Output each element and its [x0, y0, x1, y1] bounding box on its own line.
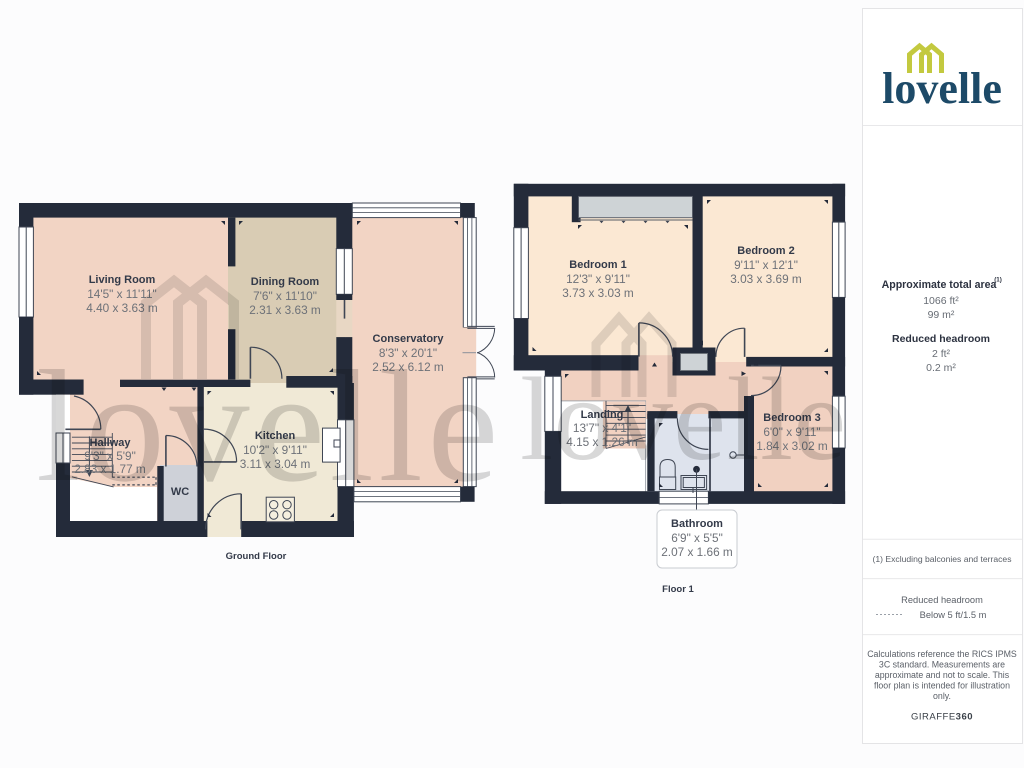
svg-text:2.31 x 3.63 m: 2.31 x 3.63 m [249, 303, 321, 317]
svg-text:3C standard. Measurements are: 3C standard. Measurements are [879, 660, 1005, 670]
svg-text:Approximate total area: Approximate total area [882, 279, 997, 291]
svg-text:Living Room: Living Room [89, 274, 156, 286]
svg-text:3.73 x 3.03 m: 3.73 x 3.03 m [562, 286, 634, 300]
svg-text:lovelle: lovelle [520, 353, 847, 485]
svg-text:Bedroom 1: Bedroom 1 [569, 259, 626, 271]
svg-text:Bathroom: Bathroom [671, 518, 723, 530]
svg-text:1066 ft²: 1066 ft² [923, 295, 959, 307]
svg-text:3.03 x 3.69 m: 3.03 x 3.69 m [730, 272, 802, 286]
svg-text:Calculations reference the RIC: Calculations reference the RICS IPMS [867, 649, 1017, 659]
svg-text:floor plan is intended for ill: floor plan is intended for illustration [874, 681, 1010, 691]
svg-text:7'6" x 11'10": 7'6" x 11'10" [253, 289, 317, 303]
svg-text:GIRAFFE360: GIRAFFE360 [911, 712, 973, 723]
svg-text:only.: only. [933, 691, 951, 701]
svg-text:12'3" x 9'11": 12'3" x 9'11" [566, 272, 630, 286]
svg-text:Ground Floor: Ground Floor [226, 551, 287, 562]
svg-text:2 ft²: 2 ft² [932, 348, 951, 360]
svg-text:approximate and not to scale.: approximate and not to scale. This [875, 670, 1010, 680]
svg-text:6'9" x 5'5": 6'9" x 5'5" [671, 531, 723, 545]
svg-text:Below 5 ft/1.5 m: Below 5 ft/1.5 m [920, 610, 987, 620]
svg-text:(1) Excluding balconies and te: (1) Excluding balconies and terraces [872, 554, 1011, 564]
svg-text:9'11" x 12'1": 9'11" x 12'1" [734, 258, 798, 272]
svg-text:lovelle: lovelle [882, 64, 1002, 113]
svg-text:Dining Room: Dining Room [251, 276, 320, 288]
svg-text:99 m²: 99 m² [928, 309, 955, 321]
svg-text:Reduced headroom: Reduced headroom [901, 595, 983, 605]
svg-text:(1): (1) [994, 277, 1002, 284]
svg-text:Floor 1: Floor 1 [662, 584, 694, 595]
svg-text:2.07 x 1.66 m: 2.07 x 1.66 m [661, 545, 733, 559]
svg-text:Reduced headroom: Reduced headroom [892, 333, 990, 345]
svg-text:Bedroom 2: Bedroom 2 [737, 245, 794, 257]
svg-text:0.2 m²: 0.2 m² [926, 362, 956, 374]
svg-text:lovelle: lovelle [36, 337, 503, 515]
